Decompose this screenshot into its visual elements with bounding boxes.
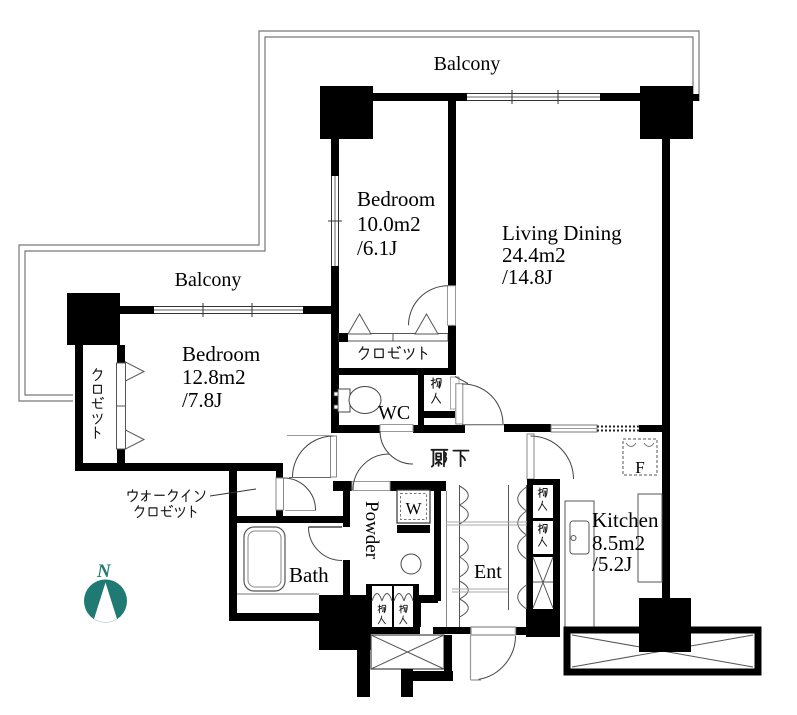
- svg-text:/14.8J: /14.8J: [502, 265, 553, 289]
- svg-text:12.8m2: 12.8m2: [182, 365, 246, 389]
- svg-text:/5.2J: /5.2J: [592, 552, 632, 576]
- svg-text:Balcony: Balcony: [434, 53, 501, 75]
- svg-text:Powder: Powder: [361, 501, 382, 560]
- svg-text:Kitchen: Kitchen: [592, 508, 659, 532]
- svg-text:/6.1J: /6.1J: [357, 236, 397, 260]
- svg-text:Bath: Bath: [289, 563, 329, 587]
- svg-text:Balcony: Balcony: [175, 269, 242, 291]
- svg-text:Ent: Ent: [474, 561, 502, 583]
- svg-text:Bedroom: Bedroom: [357, 187, 435, 211]
- svg-text:10.0m2: 10.0m2: [357, 212, 421, 236]
- svg-text:F: F: [635, 458, 644, 477]
- svg-text:N: N: [96, 561, 112, 582]
- svg-text:W: W: [405, 499, 422, 518]
- svg-text:/7.8J: /7.8J: [182, 388, 222, 412]
- svg-text:WC: WC: [378, 402, 410, 424]
- svg-text:24.4m2: 24.4m2: [502, 243, 566, 267]
- svg-text:Living Dining: Living Dining: [502, 221, 622, 245]
- svg-text:Bedroom: Bedroom: [182, 342, 260, 366]
